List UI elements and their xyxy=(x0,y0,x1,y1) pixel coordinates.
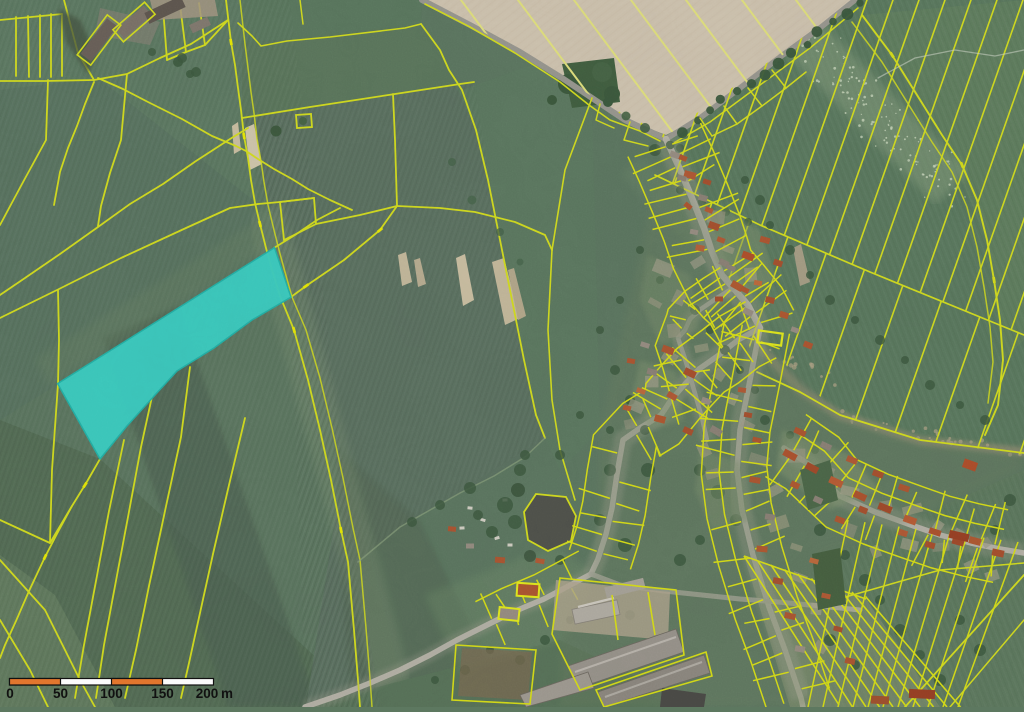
svg-text:150: 150 xyxy=(151,686,174,701)
svg-text:100: 100 xyxy=(100,686,123,701)
svg-text:m: m xyxy=(221,686,233,701)
svg-text:0: 0 xyxy=(6,686,14,701)
svg-text:50: 50 xyxy=(53,686,68,701)
svg-text:200: 200 xyxy=(196,686,219,701)
